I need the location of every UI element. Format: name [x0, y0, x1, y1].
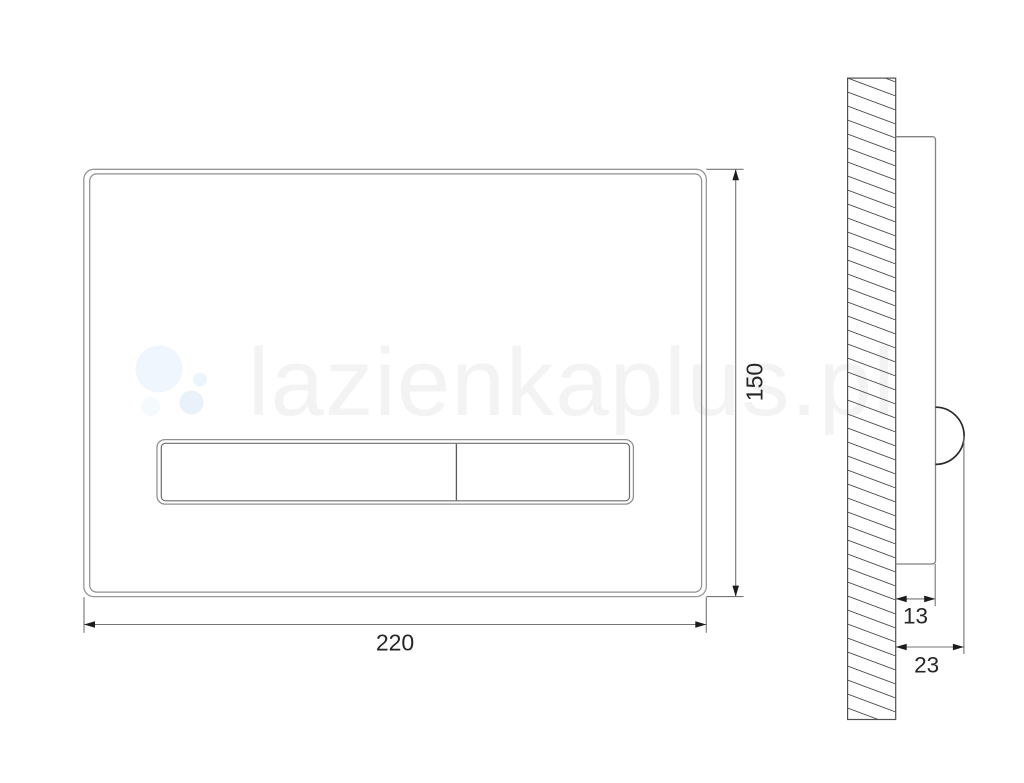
svg-text:150: 150: [742, 363, 768, 401]
svg-text:lazienkaplus.pl: lazienkaplus.pl: [248, 329, 896, 436]
svg-text:220: 220: [376, 629, 414, 655]
svg-text:23: 23: [914, 653, 939, 678]
svg-text:13: 13: [903, 603, 928, 628]
